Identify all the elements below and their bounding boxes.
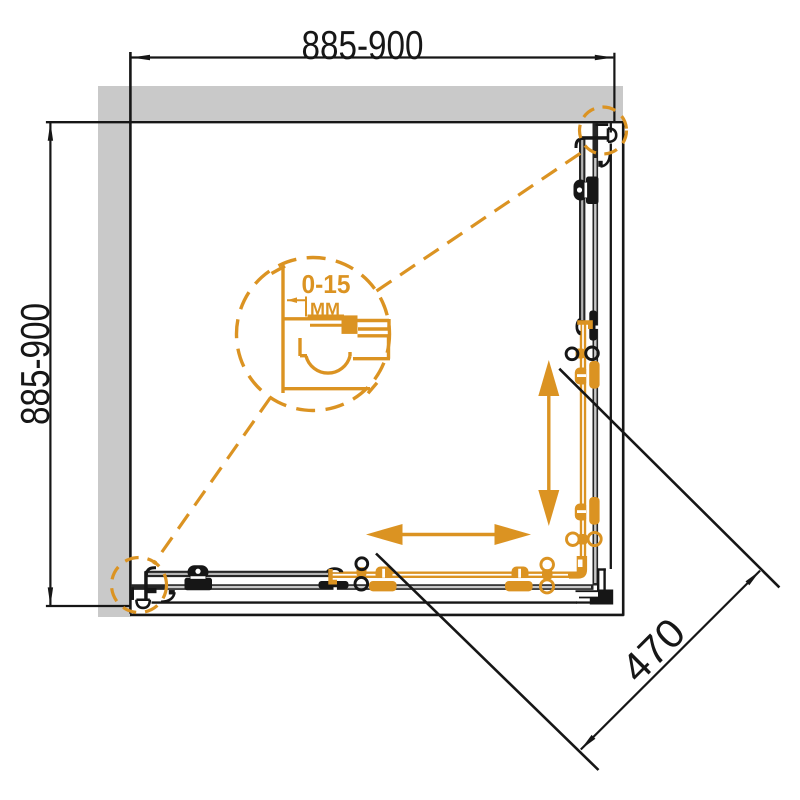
svg-text:MM: MM xyxy=(310,300,340,319)
svg-text:470: 470 xyxy=(612,609,694,691)
svg-text:885-900: 885-900 xyxy=(302,22,424,68)
svg-text:0-15: 0-15 xyxy=(302,269,351,299)
svg-text:885-900: 885-900 xyxy=(12,303,58,425)
